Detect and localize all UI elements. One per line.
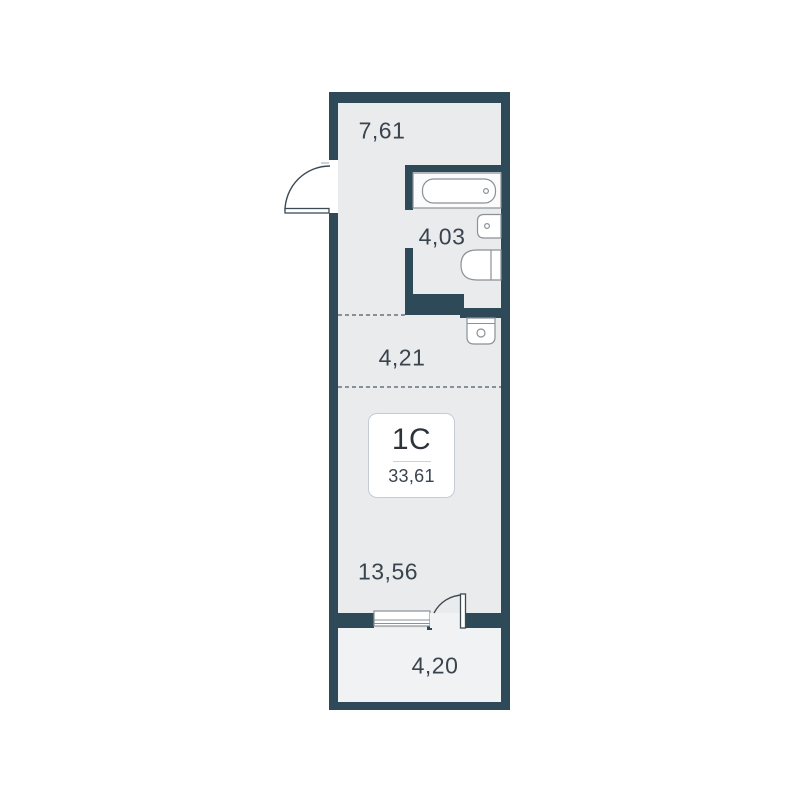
entry-door-icon [285, 163, 330, 213]
wall-bathroom-bottom-thick [405, 294, 464, 315]
floorplan-canvas: 7,61 4,03 4,21 13,56 4,20 1C 33,61 [0, 0, 800, 800]
area-label-living-room: 13,56 [358, 559, 418, 586]
balcony-door-leaf [461, 594, 466, 628]
wall-left-lower [329, 213, 338, 710]
unit-type-label: 1C [392, 424, 431, 456]
wall-room-bottom-left [338, 613, 374, 628]
sink-icon [478, 215, 502, 239]
wall-bathroom-bottom-strip [460, 308, 501, 318]
entry-door-jamb-top [329, 160, 338, 165]
balcony-door-opening [430, 613, 463, 628]
area-label-bathroom: 4,03 [419, 224, 466, 251]
washing-machine-body [467, 318, 495, 344]
wall-balcony-bottom [329, 702, 510, 710]
wall-top [329, 92, 510, 103]
area-label-hallway: 7,61 [359, 118, 406, 145]
entry-door-jambs [329, 160, 338, 213]
area-label-balcony: 4,20 [412, 653, 459, 680]
entry-door-leaf [285, 209, 329, 214]
wall-bathroom-top [405, 165, 501, 172]
wall-left-upper [329, 103, 338, 160]
entry-door-jamb-bottom [329, 208, 338, 213]
washing-machine-icon [467, 318, 495, 344]
entry-door-swing-arc [285, 166, 330, 211]
wall-room-bottom-right [466, 613, 501, 628]
bathtub-icon [413, 173, 501, 208]
bathtub-inner [423, 179, 496, 203]
unit-total-area: 33,61 [388, 466, 435, 487]
wall-bathroom-left-upper [405, 165, 413, 210]
wall-bathroom-left-lower [405, 248, 413, 296]
wall-right [501, 103, 510, 710]
area-label-corridor: 4,21 [379, 345, 426, 372]
window-icon [374, 611, 430, 626]
unit-info-badge: 1C 33,61 [368, 413, 455, 498]
toilet-bowl [461, 250, 501, 280]
unit-badge-divider [393, 461, 431, 462]
toilet-icon [461, 250, 501, 280]
